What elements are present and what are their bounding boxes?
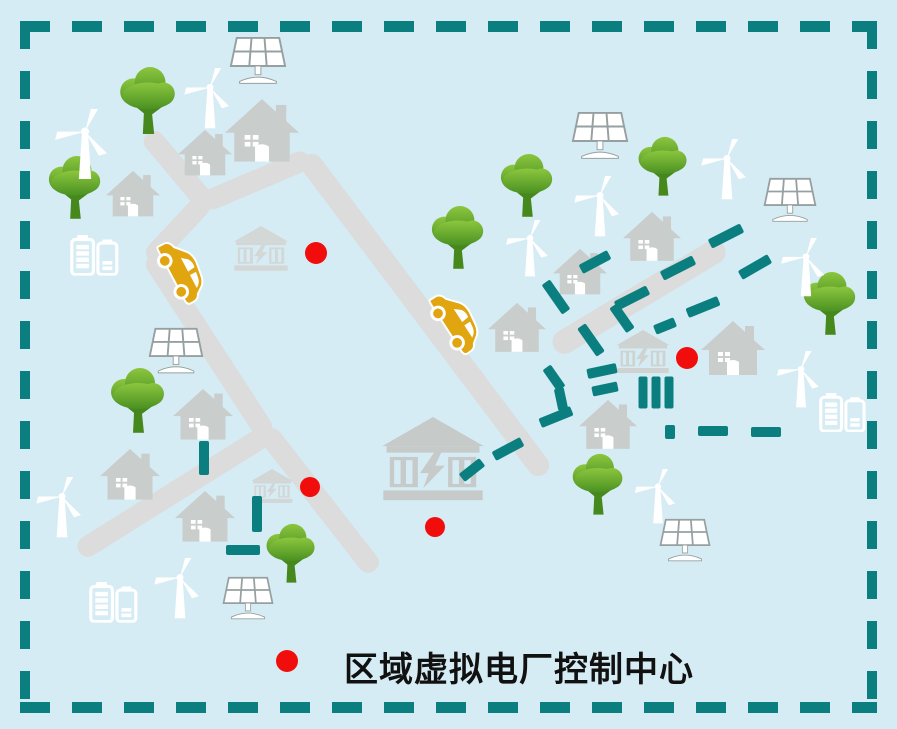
power-line-dash [708,223,745,248]
tree-icon [568,453,628,515]
wind-turbine-icon [776,238,836,298]
map-border-bottom [20,702,877,713]
tree-icon [634,136,692,196]
house-art [178,129,232,176]
tree-icon [106,367,170,433]
battery-storage-art [89,581,143,623]
power-line-dash [652,376,661,408]
wind-turbine-art [149,558,211,620]
power-line-dash [665,425,675,439]
tree-icon [427,205,489,269]
solar-panel-art [657,518,713,562]
solar-panel-icon [220,576,276,620]
wind-turbine-art [31,477,93,539]
power-plant-art [232,226,290,271]
tree-art [262,523,320,583]
solar-panel-icon [146,327,206,374]
wind-turbine-icon [569,176,631,238]
control-center-dot [676,347,698,369]
control-center-dot [305,242,327,264]
tree-art [427,205,489,269]
tree-icon [496,153,558,217]
wind-turbine-icon [49,109,121,181]
legend-control-center-dot [276,650,298,672]
power-plant-art [615,330,671,374]
solar-panel-art [220,576,276,620]
solar-panel-icon [761,177,819,222]
house-icon [178,129,232,176]
house-art [623,211,681,262]
tree-art [634,136,692,196]
power-line-dash [698,426,728,436]
power-line-dash [751,427,781,437]
house-art [579,399,637,450]
wind-turbine-art [501,220,559,278]
house-art [173,388,233,441]
map-border-left [20,21,30,713]
wind-turbine-art [630,469,686,525]
electric-car-art [418,278,494,363]
wind-turbine-art [569,176,631,238]
power-line-dash [586,363,617,379]
solar-panel-icon [227,36,289,84]
house-art [701,320,765,376]
house-icon [488,302,546,353]
house-art [488,302,546,353]
power-plant-icon [379,417,487,501]
house-icon [579,399,637,450]
battery-storage-art [70,234,124,276]
power-line-dash [252,496,262,532]
map-border-right [867,21,877,713]
wind-turbine-icon [149,558,211,620]
wind-turbine-icon [696,139,758,201]
power-plant-art [379,417,487,501]
control-center-dot [425,517,445,537]
house-art [100,448,160,501]
battery-storage-icon [819,392,871,432]
wind-turbine-art [776,238,836,298]
power-plant-icon [615,330,671,374]
legend-label: 区域虚拟电厂控制中心 [344,642,694,691]
solar-panel-art [761,177,819,222]
power-line-dash [738,254,772,280]
wind-turbine-icon [630,469,686,525]
tree-icon [262,523,320,583]
tree-icon [115,66,181,134]
power-line-dash [226,545,260,555]
tree-art [115,66,181,134]
house-icon [173,388,233,441]
power-line-dash [685,296,720,318]
power-line-dash [591,381,619,396]
solar-panel-art [227,36,289,84]
control-center-dot [300,477,320,497]
house-art [175,490,235,543]
house-icon [175,490,235,543]
power-plant-icon [232,226,290,271]
tree-art [496,153,558,217]
vpp-region-map: 区域虚拟电厂控制中心 [0,0,897,729]
wind-turbine-icon [31,477,93,539]
house-icon [623,211,681,262]
solar-panel-icon [569,111,631,159]
wind-turbine-art [696,139,758,201]
battery-storage-icon [70,234,124,276]
power-line-dash [665,376,674,408]
electric-car-icon [418,278,494,363]
tree-art [106,367,170,433]
house-icon [701,320,765,376]
legend: 区域虚拟电厂控制中心 [0,640,897,700]
power-line-dash [639,376,648,408]
solar-panel-art [146,327,206,374]
battery-storage-icon [89,581,143,623]
solar-panel-icon [657,518,713,562]
power-line-dash [554,387,568,411]
house-icon [100,448,160,501]
wind-turbine-icon [501,220,559,278]
wind-turbine-art [49,109,121,181]
power-line-dash [199,441,209,475]
power-line-dash [538,406,573,428]
map-border-top [20,21,877,32]
solar-panel-art [569,111,631,159]
battery-storage-art [819,392,871,432]
tree-art [568,453,628,515]
